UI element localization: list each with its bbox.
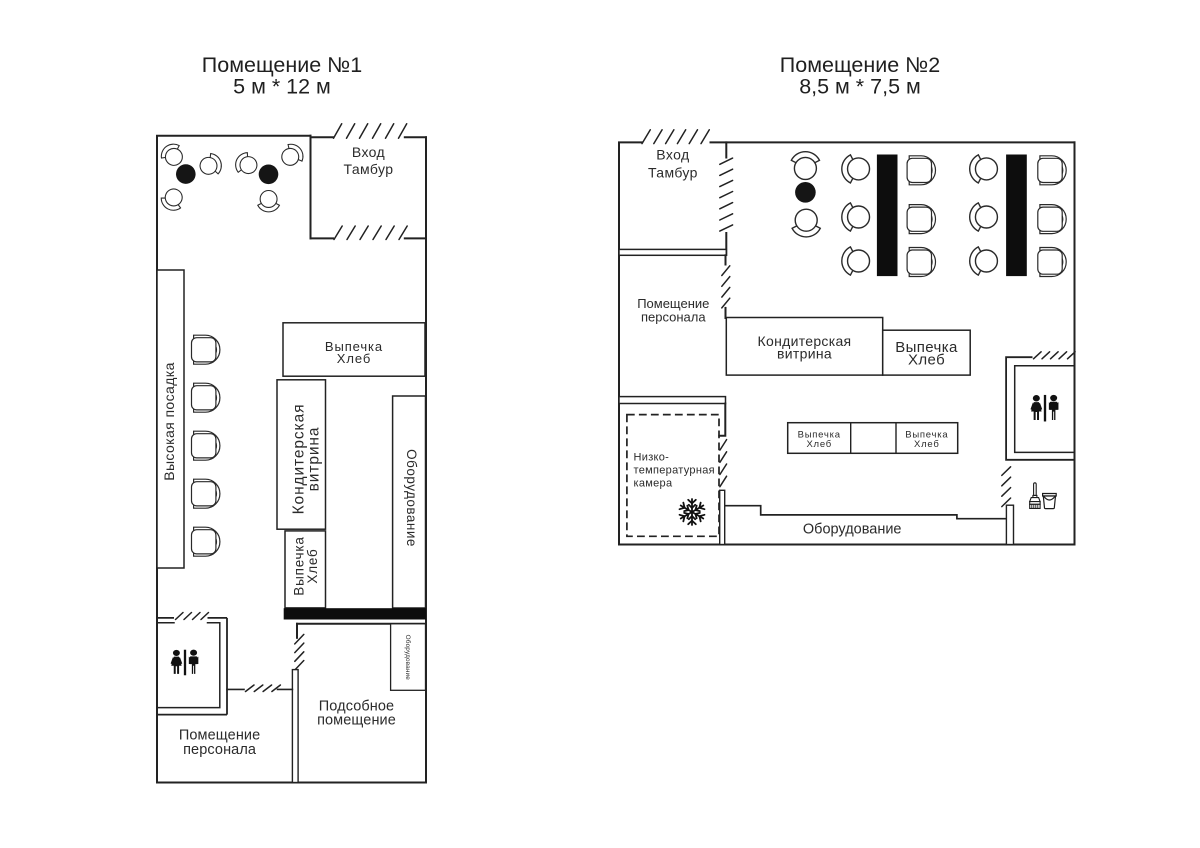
svg-text:Хлеб: Хлеб: [806, 439, 832, 450]
svg-text:персонала: персонала: [183, 742, 257, 758]
svg-text:персонала: персонала: [641, 310, 706, 325]
svg-text:витрина: витрина: [777, 345, 832, 361]
svg-text:Помещение №1: Помещение №1: [202, 53, 362, 77]
svg-text:Оборудование: Оборудование: [404, 449, 419, 547]
svg-text:Тамбур: Тамбур: [344, 161, 394, 177]
svg-text:Высокая посадка: Высокая посадка: [161, 362, 177, 481]
svg-text:Хлеб: Хлеб: [914, 439, 940, 450]
svg-text:помещение: помещение: [317, 713, 396, 729]
svg-text:5 м * 12 м: 5 м * 12 м: [233, 75, 331, 99]
svg-text:Помещение №2: Помещение №2: [780, 53, 940, 77]
svg-text:Вход: Вход: [352, 144, 385, 160]
svg-text:Хлеб: Хлеб: [305, 548, 320, 583]
svg-text:камера: камера: [634, 478, 673, 490]
svg-text:Оборудование: Оборудование: [803, 521, 902, 537]
svg-text:Оборудование: Оборудование: [404, 635, 412, 681]
svg-text:8,5 м * 7,5 м: 8,5 м * 7,5 м: [799, 75, 921, 99]
svg-text:Низко-: Низко-: [634, 452, 670, 464]
svg-text:витрина: витрина: [305, 427, 322, 492]
svg-text:температурная: температурная: [634, 465, 715, 477]
svg-text:Тамбур: Тамбур: [648, 165, 698, 181]
svg-text:Хлеб: Хлеб: [337, 351, 371, 366]
svg-text:Хлеб: Хлеб: [908, 352, 945, 369]
svg-text:Вход: Вход: [656, 147, 689, 163]
